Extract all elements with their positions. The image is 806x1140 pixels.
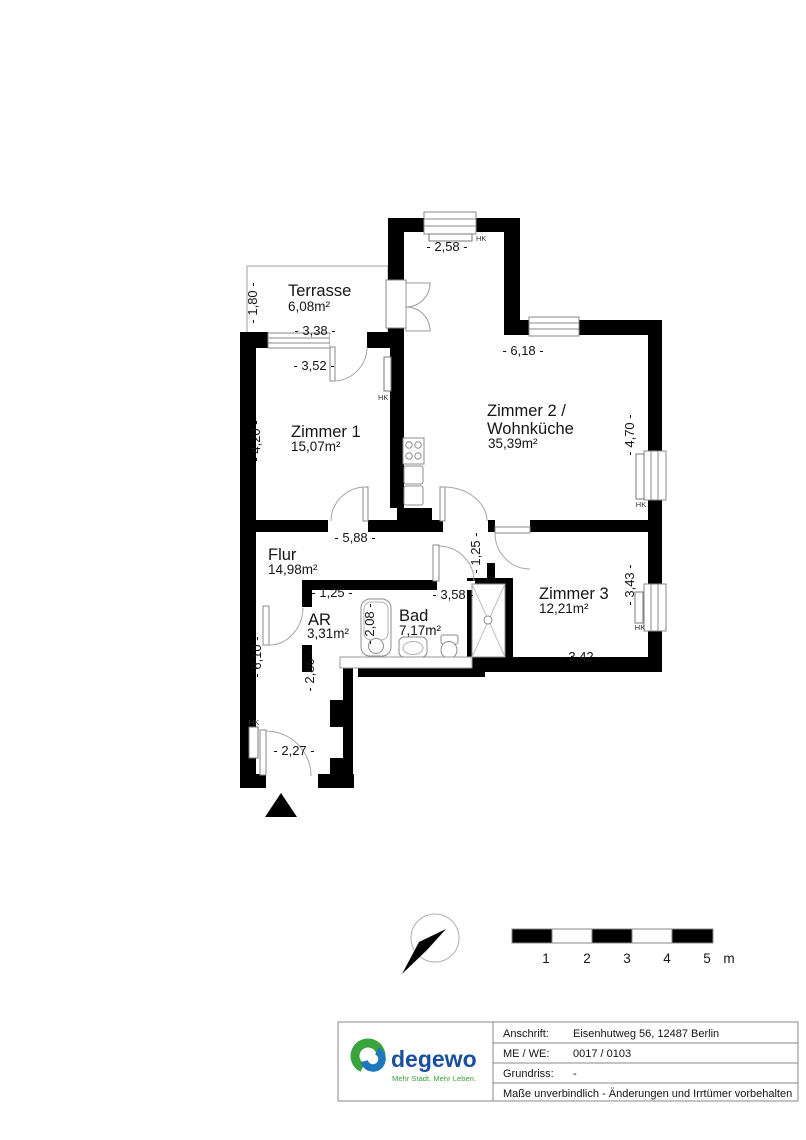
radiator-entrance bbox=[249, 727, 258, 758]
dimension-label: - 6,10 - bbox=[249, 636, 264, 677]
entrance-door-leaf bbox=[260, 730, 266, 775]
window-step bbox=[529, 317, 579, 336]
door-leaf bbox=[440, 487, 445, 521]
titleblock-disclaimer: Maße unverbindlich - Änderungen und Irrt… bbox=[503, 1088, 792, 1100]
scale-tick: 5 bbox=[703, 951, 711, 966]
hk-label: HK bbox=[635, 623, 645, 632]
degewo-brand-text: degewo bbox=[391, 1046, 477, 1072]
room-area-terrasse: 6,08m² bbox=[288, 299, 331, 314]
dimension-label: - 4,70 - bbox=[622, 414, 637, 455]
hk-label: HK bbox=[476, 234, 486, 243]
scale-bar: 1 2 3 4 5 m bbox=[512, 929, 735, 966]
dimension-label: - 1,25 - bbox=[468, 532, 483, 573]
dimension-label: - 3,58 - bbox=[432, 587, 473, 602]
room-area-ar: 3,31m² bbox=[307, 626, 350, 641]
dimension-label: - 3,38 - bbox=[294, 323, 335, 338]
room-label-terrasse: Terrasse bbox=[288, 282, 351, 300]
door-leaf bbox=[363, 487, 368, 521]
dimension-label: - 3,52 - bbox=[293, 358, 334, 373]
door-arc bbox=[333, 347, 367, 381]
room-area-zimmer2: 35,39m² bbox=[488, 436, 538, 451]
radiator-zimmer2 bbox=[636, 454, 644, 499]
entrance-arrow-icon bbox=[265, 793, 297, 817]
dimension-label: - 2,58 - bbox=[426, 239, 467, 254]
door-leaf bbox=[433, 545, 439, 581]
dimension-label: - 3,42 - bbox=[560, 649, 601, 664]
dimension-label: - 2,86 - bbox=[302, 650, 317, 691]
door-arc bbox=[269, 608, 303, 645]
north-arrow-icon bbox=[402, 929, 446, 974]
titleblock-value-anschrift: Eisenhutweg 56, 12487 Berlin bbox=[573, 1028, 719, 1040]
door-arc bbox=[495, 533, 530, 569]
scale-tick: 4 bbox=[663, 951, 671, 966]
scale-tick: 2 bbox=[583, 951, 591, 966]
titleblock-value-grundriss: - bbox=[573, 1068, 577, 1080]
radiator-zimmer1 bbox=[384, 357, 391, 391]
room-area-flur: 14,98m² bbox=[268, 562, 318, 577]
partition-band bbox=[340, 657, 472, 668]
dimension-label: - 4,20 - bbox=[248, 420, 263, 461]
titleblock-label-mewe: ME / WE: bbox=[503, 1048, 549, 1060]
balcony-door-leaf bbox=[406, 307, 430, 331]
door-opening bbox=[443, 521, 488, 532]
kitchen-sink bbox=[404, 466, 423, 505]
door-arc bbox=[443, 487, 487, 521]
scale-unit: m bbox=[723, 951, 734, 966]
dimension-label: - 3,43 - bbox=[622, 564, 637, 605]
titleblock-label-grundriss: Grundriss: bbox=[503, 1068, 554, 1080]
scale-ticks: 1 2 3 4 5 m bbox=[542, 951, 734, 966]
floor-plan-drawing: Terrasse 6,08m² Zimmer 1 15,07m² Zimmer … bbox=[0, 0, 806, 1140]
degewo-tagline: Mehr Stadt. Mehr Leben. bbox=[392, 1074, 476, 1083]
window-zimmer3-east bbox=[644, 584, 666, 631]
dimension-label: - 1,80 - bbox=[245, 282, 260, 323]
balcony-door-opening bbox=[386, 280, 406, 328]
room-area-zimmer1: 15,07m² bbox=[291, 439, 341, 454]
hk-label: HK bbox=[636, 500, 646, 509]
north-compass bbox=[402, 914, 459, 974]
toilet bbox=[441, 635, 458, 659]
door-leaf bbox=[495, 527, 530, 533]
scale-tick: 1 bbox=[542, 951, 550, 966]
balcony-door-leaf bbox=[406, 283, 430, 307]
room-area-zimmer3: 12,21m² bbox=[539, 601, 589, 616]
door-arc bbox=[331, 487, 366, 521]
dimension-label: - 1,25 - bbox=[311, 585, 352, 600]
window-top bbox=[424, 212, 476, 234]
dimension-label: - 2,08 - bbox=[362, 603, 377, 644]
washbasin bbox=[399, 637, 427, 657]
dimension-label: - 5,88 - bbox=[334, 530, 375, 545]
dimension-label: - 2,27 - bbox=[273, 743, 314, 758]
room-label-zimmer2-line1: Zimmer 2 / bbox=[487, 402, 566, 420]
room-area-bad: 7,17m² bbox=[399, 623, 442, 638]
hk-label: HK bbox=[378, 393, 388, 402]
scale-tick: 3 bbox=[623, 951, 631, 966]
titleblock-value-mewe: 0017 / 0103 bbox=[573, 1048, 631, 1060]
window-zimmer2-east bbox=[644, 451, 666, 500]
entrance-door-opening bbox=[266, 774, 318, 788]
hk-label: HK bbox=[249, 718, 259, 727]
shower bbox=[472, 584, 505, 657]
title-block: Anschrift: Eisenhutweg 56, 12487 Berlin … bbox=[338, 1022, 798, 1101]
kitchen-stove bbox=[403, 438, 424, 464]
dimension-label: - 6,18 - bbox=[502, 343, 543, 358]
floor-plan-page: Terrasse 6,08m² Zimmer 1 15,07m² Zimmer … bbox=[0, 0, 806, 1140]
titleblock-label-anschrift: Anschrift: bbox=[503, 1028, 549, 1040]
